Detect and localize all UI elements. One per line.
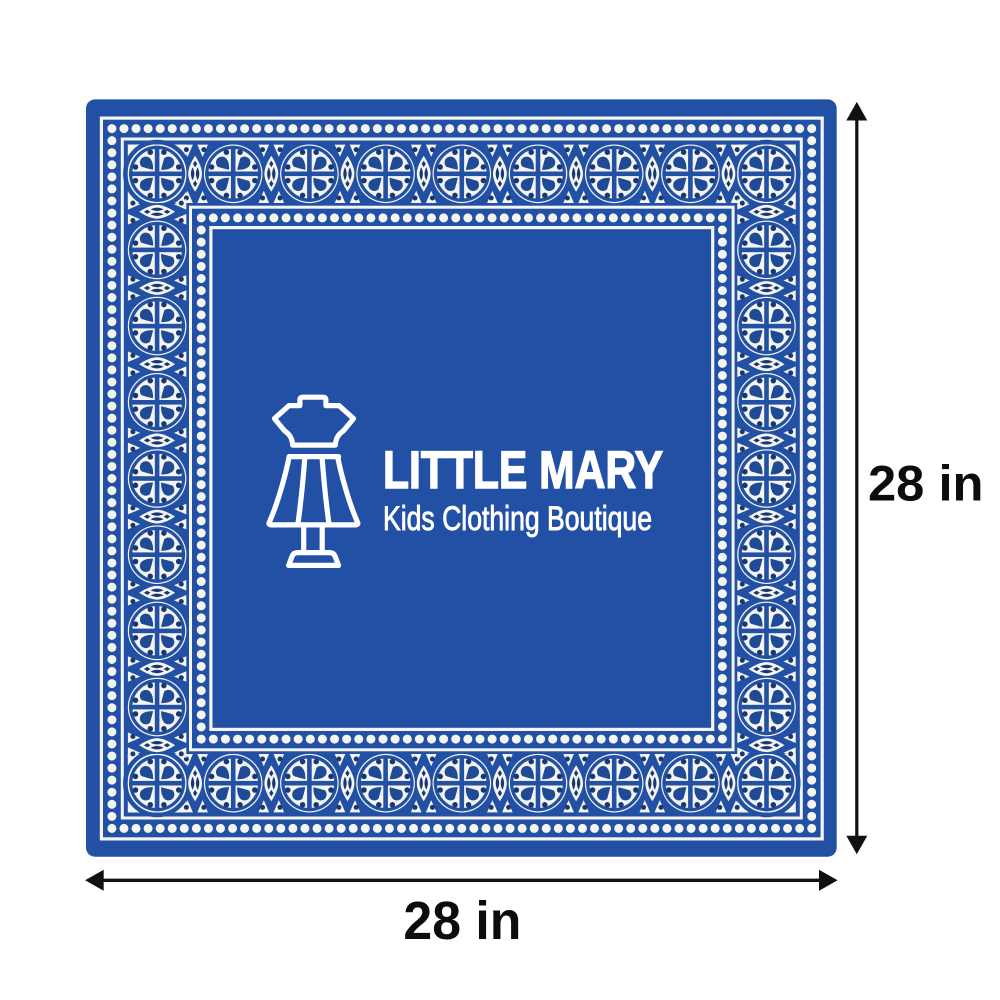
svg-text:Kids Clothing Boutique: Kids Clothing Boutique — [383, 500, 652, 538]
svg-text:28 in: 28 in — [868, 455, 984, 512]
svg-text:LITTLE MARY: LITTLE MARY — [383, 442, 663, 500]
svg-text:28 in: 28 in — [403, 892, 521, 951]
